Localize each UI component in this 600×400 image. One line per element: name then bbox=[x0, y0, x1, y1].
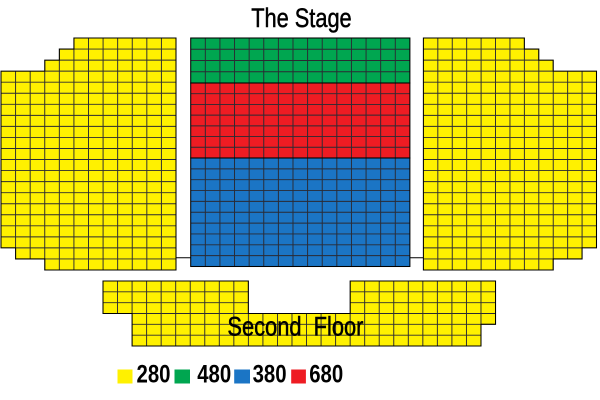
svg-text:380: 380 bbox=[253, 359, 287, 388]
svg-text:680: 680 bbox=[309, 359, 343, 388]
svg-text:Second Floor: Second Floor bbox=[227, 312, 363, 342]
svg-text:The Stage: The Stage bbox=[251, 4, 351, 34]
svg-text:280: 280 bbox=[137, 359, 171, 388]
svg-text:480: 480 bbox=[197, 359, 231, 388]
